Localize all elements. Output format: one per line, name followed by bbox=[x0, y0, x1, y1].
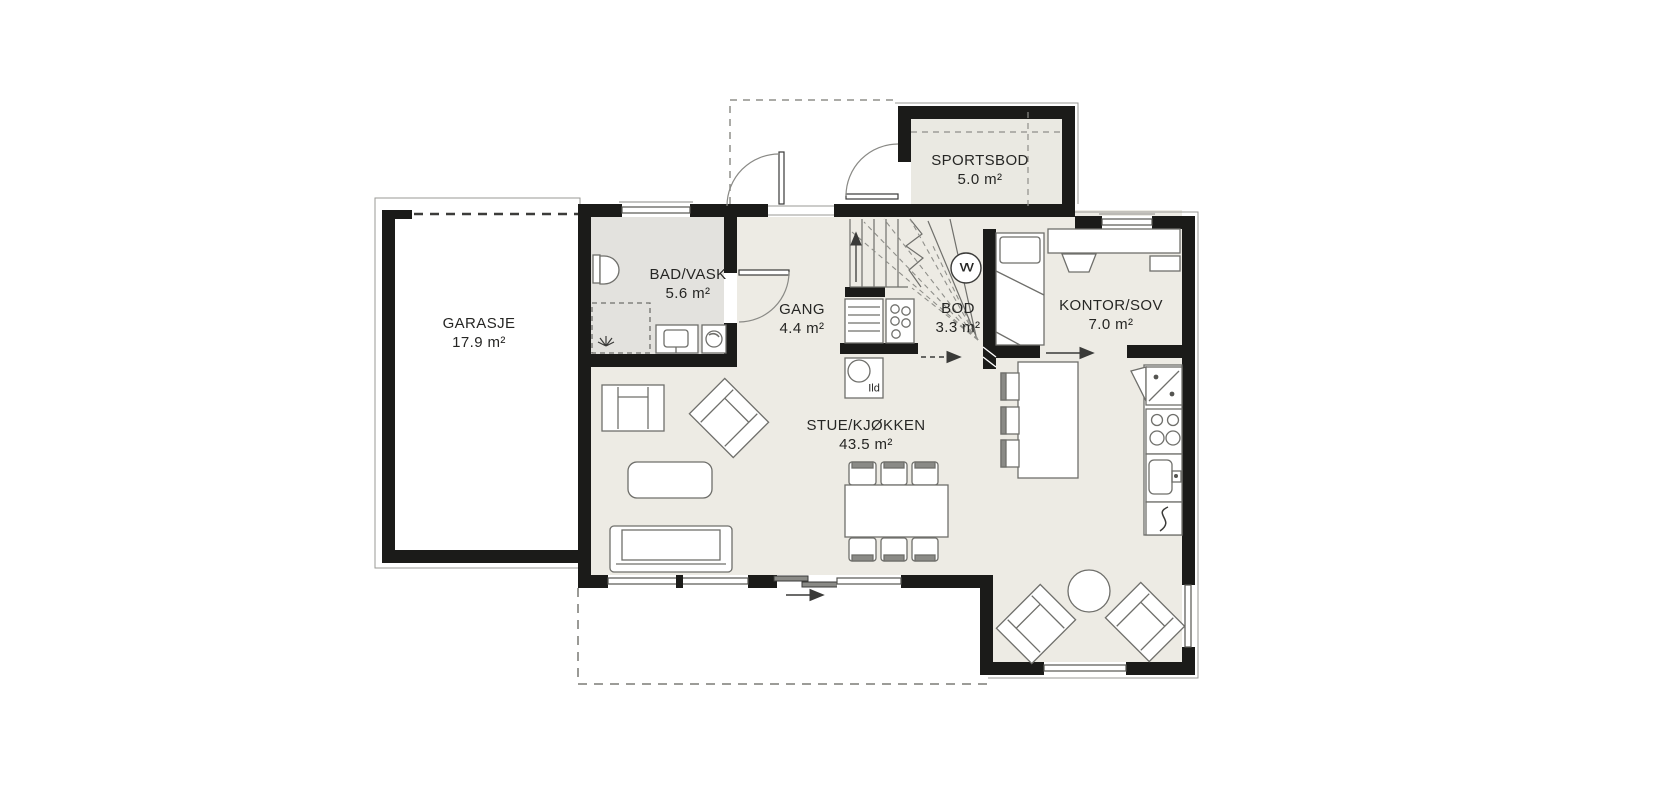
dining-chairs-top bbox=[849, 462, 938, 485]
coffee-table bbox=[628, 462, 712, 498]
window-living-b bbox=[837, 575, 901, 588]
sink-icon bbox=[1146, 454, 1182, 502]
garage bbox=[375, 198, 580, 568]
floor-plan-page: GARASJE 17.9 m² SPORTSBOD 5.0 m² BAD/VAS… bbox=[0, 0, 1670, 800]
dining-chairs-bottom bbox=[849, 538, 938, 561]
vanity-sink-icon bbox=[656, 325, 698, 353]
sliding-door[interactable] bbox=[774, 575, 839, 595]
sofa bbox=[610, 526, 732, 572]
terrace-outline-dashed bbox=[578, 588, 990, 684]
round-table bbox=[1068, 570, 1110, 612]
kitchen-island bbox=[1018, 362, 1078, 478]
armchair bbox=[602, 385, 664, 431]
window-living-a bbox=[608, 575, 748, 588]
fireplace-icon bbox=[845, 358, 883, 398]
window-nook-bottom bbox=[1044, 662, 1126, 675]
washing-machine-icon bbox=[702, 325, 726, 353]
floor-plan: GARASJE 17.9 m² SPORTSBOD 5.0 m² BAD/VAS… bbox=[372, 88, 1202, 688]
dishwasher-icon bbox=[1146, 502, 1182, 535]
bod-hatch-door bbox=[983, 343, 996, 369]
cabinet-burners-icon bbox=[886, 299, 914, 343]
window-right-wall bbox=[1182, 585, 1195, 647]
window-kontor bbox=[1099, 214, 1155, 229]
bed bbox=[996, 233, 1044, 345]
porch-outline-dashed bbox=[730, 100, 898, 204]
dining-set bbox=[845, 462, 948, 561]
window-top-bathroom bbox=[619, 202, 693, 217]
dining-table bbox=[845, 485, 948, 537]
sportsbod-floor bbox=[904, 112, 1069, 210]
wardrobe-icon bbox=[845, 299, 883, 343]
cooktop-icon bbox=[1146, 409, 1182, 454]
floor-plan-canvas bbox=[372, 88, 1202, 688]
water-heater-icon bbox=[951, 253, 981, 283]
bar-stools bbox=[1001, 373, 1019, 467]
